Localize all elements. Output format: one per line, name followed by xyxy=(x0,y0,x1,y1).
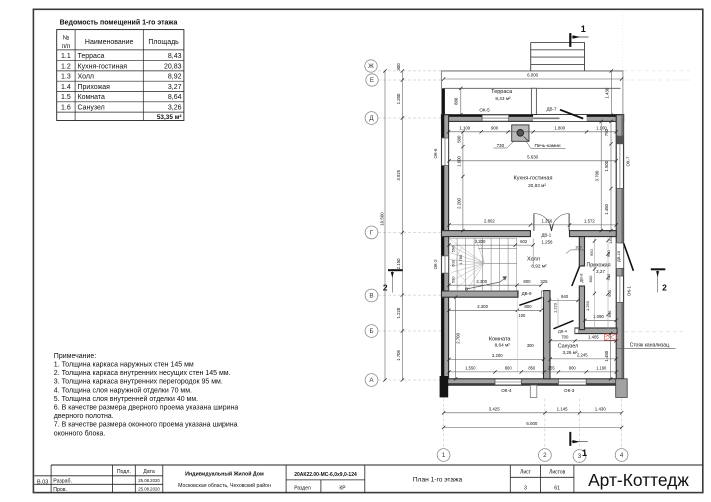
svg-text:8,92 м²: 8,92 м² xyxy=(531,263,547,268)
svg-text:1.572: 1.572 xyxy=(584,219,595,224)
svg-text:ОК-2: ОК-2 xyxy=(433,259,438,269)
svg-text:3,26 м²: 3,26 м² xyxy=(563,350,578,355)
svg-text:Стояк канализац.: Стояк канализац. xyxy=(630,342,671,348)
svg-text:1.405: 1.405 xyxy=(588,335,599,340)
svg-text:3.925: 3.925 xyxy=(396,169,401,180)
svg-text:940: 940 xyxy=(561,294,569,299)
svg-text:№: № xyxy=(63,34,70,41)
svg-text:Дата: Дата xyxy=(143,469,155,475)
svg-text:1.3: 1.3 xyxy=(61,74,71,81)
svg-text:880: 880 xyxy=(453,97,458,105)
svg-text:Раздел: Раздел xyxy=(294,486,311,492)
svg-text:600: 600 xyxy=(607,289,612,296)
svg-text:600: 600 xyxy=(451,259,456,266)
svg-text:Терраса: Терраса xyxy=(491,89,513,95)
svg-text:1.100: 1.100 xyxy=(459,126,470,131)
svg-text:дверного полотна.: дверного полотна. xyxy=(54,413,114,420)
svg-text:3.200: 3.200 xyxy=(492,353,503,358)
svg-text:515: 515 xyxy=(606,273,611,280)
svg-text:Прихожая: Прихожая xyxy=(586,263,610,269)
svg-text:1.550: 1.550 xyxy=(465,366,476,371)
svg-text:140: 140 xyxy=(608,236,613,243)
svg-text:20,83: 20,83 xyxy=(164,63,182,70)
svg-text:900: 900 xyxy=(491,126,499,131)
svg-text:590: 590 xyxy=(451,245,456,252)
svg-text:7. В качестве размера оконного: 7. В качестве размера оконного проема ук… xyxy=(54,422,238,429)
svg-text:3,27: 3,27 xyxy=(596,269,605,274)
svg-text:2: 2 xyxy=(543,452,547,459)
svg-text:1.256: 1.256 xyxy=(542,219,553,224)
svg-text:8,43: 8,43 xyxy=(168,53,182,60)
svg-text:Московская область, Чеховский: Московская область, Чеховский район xyxy=(178,482,271,489)
svg-text:1.500: 1.500 xyxy=(604,160,609,171)
svg-text:800: 800 xyxy=(588,275,593,282)
svg-text:1.430: 1.430 xyxy=(595,407,607,412)
svg-text:ДВ-9: ДВ-9 xyxy=(522,291,532,296)
svg-text:ОК-6: ОК-6 xyxy=(433,148,438,158)
svg-text:6.000: 6.000 xyxy=(526,421,538,426)
svg-text:1.6: 1.6 xyxy=(61,104,71,111)
svg-text:1.800: 1.800 xyxy=(554,126,565,131)
svg-text:5. Толщина слоя внутренней отд: 5. Толщина слоя внутренней отделки 40 мм… xyxy=(54,395,198,403)
svg-text:Площадь: Площадь xyxy=(148,39,179,46)
svg-text:2.700: 2.700 xyxy=(456,332,461,343)
svg-text:3: 3 xyxy=(524,486,527,492)
svg-text:ОК-1: ОК-1 xyxy=(627,286,632,296)
svg-text:2: 2 xyxy=(383,283,388,293)
svg-text:700: 700 xyxy=(561,335,569,340)
svg-text:800: 800 xyxy=(524,304,532,309)
svg-text:800: 800 xyxy=(569,366,577,371)
svg-text:8,64 м²: 8,64 м² xyxy=(495,343,511,348)
svg-text:300: 300 xyxy=(396,63,401,71)
svg-text:1.2: 1.2 xyxy=(61,63,71,70)
svg-text:3.700: 3.700 xyxy=(594,170,599,181)
svg-text:107: 107 xyxy=(575,244,582,249)
svg-text:61: 61 xyxy=(554,486,560,492)
svg-text:1.256: 1.256 xyxy=(542,239,554,244)
svg-text:2.150: 2.150 xyxy=(396,258,401,269)
svg-text:Кухня-гостиная: Кухня-гостиная xyxy=(78,63,128,70)
svg-text:1: 1 xyxy=(581,24,586,34)
svg-text:В: В xyxy=(369,293,373,300)
svg-text:Арт-Коттедж: Арт-Коттедж xyxy=(588,470,689,490)
svg-text:1.450: 1.450 xyxy=(604,204,609,215)
svg-text:Лист: Лист xyxy=(520,470,532,476)
svg-text:1.250: 1.250 xyxy=(585,300,590,311)
svg-text:850: 850 xyxy=(528,366,536,371)
svg-text:590: 590 xyxy=(451,276,456,283)
svg-text:Пров.: Пров. xyxy=(53,487,67,493)
svg-text:1.480: 1.480 xyxy=(604,350,609,361)
svg-text:2.300: 2.300 xyxy=(477,304,488,309)
svg-text:325: 325 xyxy=(540,279,548,284)
svg-text:ОК-5: ОК-5 xyxy=(479,108,490,113)
svg-text:1.220: 1.220 xyxy=(553,302,558,313)
svg-text:2.802: 2.802 xyxy=(484,219,495,224)
svg-text:1.4: 1.4 xyxy=(61,84,71,91)
svg-text:1.190: 1.190 xyxy=(596,366,607,371)
svg-text:План 1-го этажа: План 1-го этажа xyxy=(413,476,463,483)
svg-text:Ведомость помещений 1-го этажа: Ведомость помещений 1-го этажа xyxy=(60,19,178,27)
svg-text:КР: КР xyxy=(339,486,346,492)
svg-text:4: 4 xyxy=(620,452,624,459)
svg-text:6.000: 6.000 xyxy=(527,73,539,78)
svg-text:Комната: Комната xyxy=(489,336,511,342)
svg-text:730: 730 xyxy=(496,143,504,148)
svg-text:3.425: 3.425 xyxy=(489,407,501,412)
svg-text:Санузел: Санузел xyxy=(558,344,578,350)
svg-text:Холл: Холл xyxy=(527,256,540,262)
svg-text:1.705: 1.705 xyxy=(396,350,401,361)
svg-text:Б: Б xyxy=(369,328,373,335)
svg-text:10.500: 10.500 xyxy=(379,212,384,226)
svg-text:750: 750 xyxy=(604,128,609,136)
svg-text:2.200: 2.200 xyxy=(475,239,486,244)
svg-text:1.220: 1.220 xyxy=(396,307,401,318)
svg-text:Листов: Листов xyxy=(549,470,566,476)
svg-text:Наименование: Наименование xyxy=(85,39,134,46)
svg-text:В.03: В.03 xyxy=(37,480,48,486)
svg-text:1: 1 xyxy=(582,448,587,458)
svg-text:ДВ-4: ДВ-4 xyxy=(558,329,568,334)
svg-text:20,83 м²: 20,83 м² xyxy=(528,183,546,188)
svg-text:2. Толщина каркаса внутренних: 2. Толщина каркаса внутренних несущих ст… xyxy=(54,370,231,377)
svg-text:Кухня-гостиная: Кухня-гостиная xyxy=(514,175,553,181)
svg-text:ДВ-10: ДВ-10 xyxy=(616,250,621,262)
svg-text:1. Толщина каркаса наружных ст: 1. Толщина каркаса наружных стен 145 мм xyxy=(54,362,194,369)
svg-text:Индивидуальный Жилой Дом: Индивидуальный Жилой Дом xyxy=(185,471,264,478)
svg-text:800: 800 xyxy=(523,279,531,284)
svg-text:ОК-4: ОК-4 xyxy=(501,388,512,393)
svg-text:900: 900 xyxy=(606,249,611,256)
svg-text:1.430: 1.430 xyxy=(604,87,609,98)
svg-text:ОК-3: ОК-3 xyxy=(564,388,575,393)
svg-text:Подл.: Подл. xyxy=(117,469,131,475)
svg-text:Разраб.: Разраб. xyxy=(53,479,72,485)
svg-text:1.000: 1.000 xyxy=(456,156,461,167)
svg-text:Ж: Ж xyxy=(368,63,374,70)
svg-text:8,92: 8,92 xyxy=(168,74,182,81)
svg-text:ДВ-1: ДВ-1 xyxy=(541,232,551,237)
svg-text:800: 800 xyxy=(505,366,513,371)
svg-text:53,35 м²: 53,35 м² xyxy=(157,114,182,121)
svg-text:ДВ-7: ДВ-7 xyxy=(546,107,557,112)
svg-text:2: 2 xyxy=(662,283,667,293)
svg-text:100: 100 xyxy=(518,313,526,318)
svg-text:1.145: 1.145 xyxy=(557,407,569,412)
svg-text:ОК-7: ОК-7 xyxy=(626,156,631,166)
svg-text:950: 950 xyxy=(589,248,594,255)
svg-text:1.200: 1.200 xyxy=(396,93,401,104)
svg-text:Терраса: Терраса xyxy=(78,53,105,60)
svg-text:Санузел: Санузел xyxy=(78,104,105,111)
svg-text:Прихожая: Прихожая xyxy=(78,84,111,91)
svg-text:6. В качестве размера дверного: 6. В качестве размера дверного проема ук… xyxy=(54,405,239,412)
svg-text:25.08.2020: 25.08.2020 xyxy=(138,487,160,492)
svg-text:Холл: Холл xyxy=(78,74,95,81)
svg-text:3. Толщина каркаса внутренних: 3. Толщина каркаса внутренних перегородо… xyxy=(54,379,223,386)
svg-text:2.200: 2.200 xyxy=(456,198,461,209)
svg-text:1.1: 1.1 xyxy=(61,53,71,60)
svg-text:255: 255 xyxy=(548,366,556,371)
svg-text:Комната: Комната xyxy=(78,94,106,101)
svg-text:1.5: 1.5 xyxy=(61,94,71,101)
svg-text:8,64: 8,64 xyxy=(168,94,182,101)
svg-text:2.300: 2.300 xyxy=(476,279,487,284)
svg-text:3,27: 3,27 xyxy=(168,84,182,91)
svg-text:ДВ-8: ДВ-8 xyxy=(579,273,584,283)
svg-text:Е: Е xyxy=(370,77,374,84)
svg-text:5.630: 5.630 xyxy=(527,154,539,159)
svg-text:20АК22.00-МС-6,0х9,0-124: 20АК22.00-МС-6,0х9,0-124 xyxy=(294,472,357,478)
svg-text:1.780: 1.780 xyxy=(458,254,463,265)
svg-text:300: 300 xyxy=(527,343,535,348)
svg-text:Примечание:: Примечание: xyxy=(54,353,97,360)
svg-text:8,43 м²: 8,43 м² xyxy=(495,96,511,101)
svg-text:1: 1 xyxy=(442,452,446,459)
svg-text:3,26: 3,26 xyxy=(168,104,182,111)
svg-text:п/п: п/п xyxy=(62,43,70,50)
svg-text:500: 500 xyxy=(456,135,461,143)
svg-text:2.245: 2.245 xyxy=(577,353,588,358)
svg-text:4. Толщина слоя наружной отдел: 4. Толщина слоя наружной отделки 70 мм. xyxy=(54,386,192,394)
svg-text:оконного блока.: оконного блока. xyxy=(54,429,106,437)
svg-text:602: 602 xyxy=(520,239,528,244)
svg-text:840: 840 xyxy=(607,310,612,317)
svg-text:25.08.2020: 25.08.2020 xyxy=(138,478,160,483)
